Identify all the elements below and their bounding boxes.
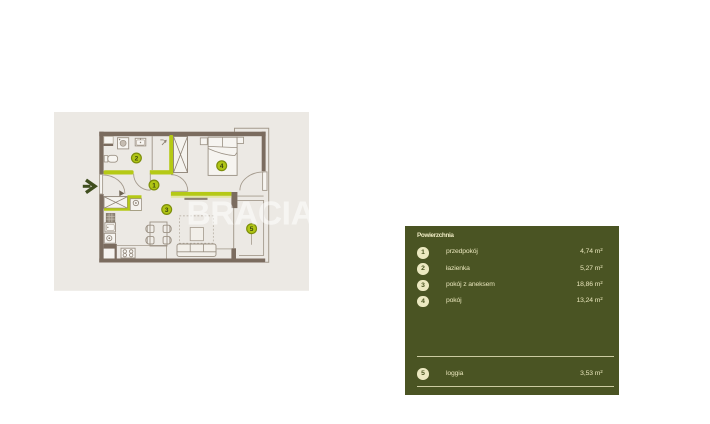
- svg-text:3: 3: [165, 207, 169, 214]
- svg-text:2: 2: [135, 155, 139, 162]
- svg-text:1: 1: [152, 182, 156, 189]
- svg-text:BRACIA: BRACIA: [187, 196, 315, 233]
- svg-text:4: 4: [220, 163, 224, 170]
